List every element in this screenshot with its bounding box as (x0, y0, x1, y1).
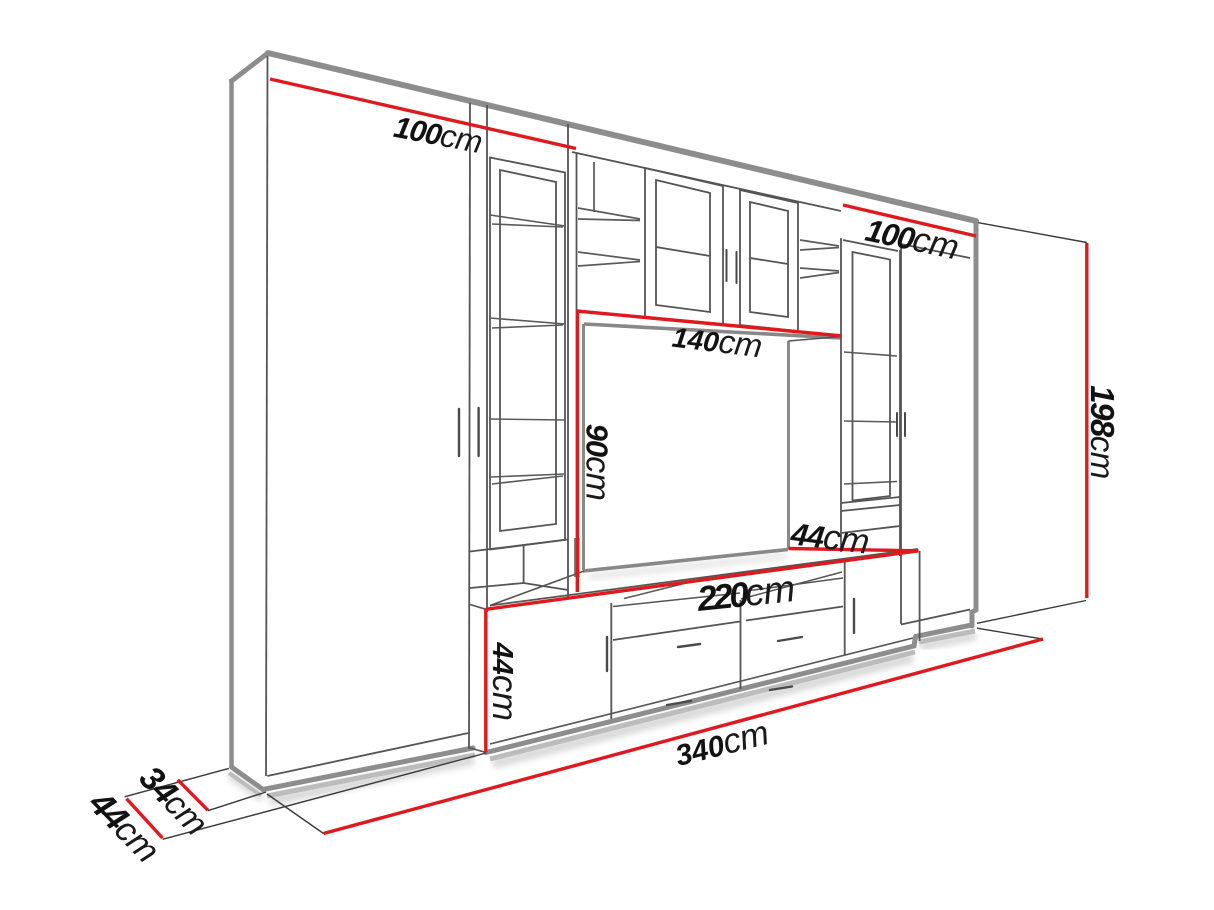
svg-text:90cm: 90cm (579, 424, 617, 501)
svg-text:198cm: 198cm (1084, 385, 1121, 479)
svg-text:44cm: 44cm (485, 642, 524, 721)
